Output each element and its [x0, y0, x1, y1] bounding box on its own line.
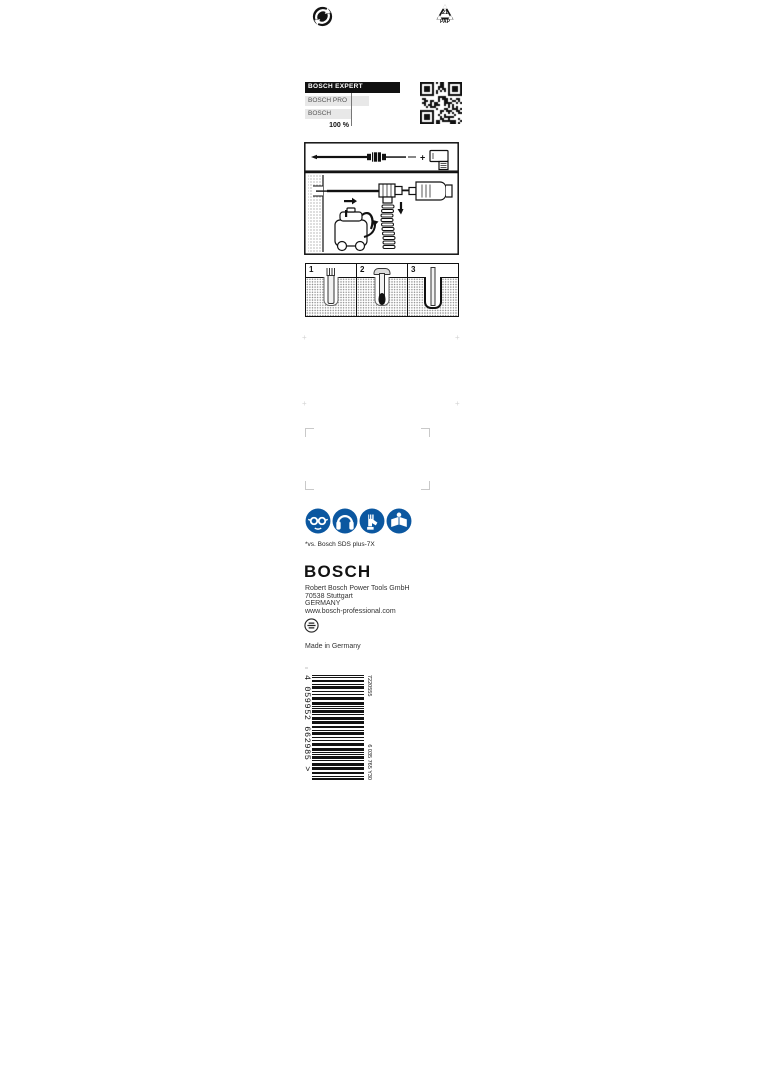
barcode-digits: 4 059952 662985 > [302, 675, 312, 780]
wear-gloves-icon [359, 508, 385, 534]
chart-bar-label: BOSCH PRO [308, 97, 347, 104]
pap-number: 21 [435, 10, 455, 16]
drillbit-shaft [328, 275, 335, 304]
chart-bar-standard: BOSCH [305, 109, 351, 119]
hammer-drill [409, 182, 452, 200]
step-number: 3 [411, 265, 415, 274]
made-in-label: Made in Germany [305, 643, 361, 650]
safety-icons-row [305, 508, 412, 534]
corner-bracket [305, 428, 314, 437]
chart-bar-pro: BOSCH PRO [305, 96, 369, 106]
print-mark [305, 667, 308, 669]
bosch-anchor-symbol-icon [304, 618, 319, 633]
green-dot-icon [312, 6, 333, 27]
corner-bracket [421, 481, 430, 490]
step-number: 1 [309, 265, 313, 274]
barcode-bars [312, 675, 364, 780]
address-line: GERMANY [305, 600, 410, 608]
wear-eye-protection-icon [305, 508, 331, 534]
address-line: www.bosch-professional.com [305, 608, 410, 616]
step-panel-3: 3 [408, 264, 458, 316]
barcode-order-code: 7220555 [364, 675, 373, 696]
usage-diagram: + [304, 142, 459, 260]
print-mark: + [302, 334, 307, 342]
dust-plug [379, 293, 386, 305]
anchor-rod [431, 267, 436, 306]
chart-bar-expert: BOSCH EXPERT [305, 82, 400, 93]
corner-bracket [421, 428, 430, 437]
print-mark: + [455, 334, 460, 342]
step-panel-1: 1 [306, 264, 357, 316]
manufacturer-address: Robert Bosch Power Tools GmbH 70538 Stut… [305, 585, 410, 615]
chart-reference-label: 100 % [305, 122, 349, 129]
drillbit [327, 190, 379, 192]
wear-ear-protection-icon [332, 508, 358, 534]
qr-code [420, 82, 462, 124]
address-line: 70538 Stuttgart [305, 593, 410, 601]
read-instructions-icon [386, 508, 412, 534]
pap-recycling-icon: 21 PAP [435, 3, 455, 29]
chart-bar-label: BOSCH [308, 110, 331, 117]
barcode-block: 7220555 6 035 765 Y30 4 059952 662985 > [302, 675, 373, 780]
barcode-article-code: 6 035 765 Y30 [364, 744, 373, 780]
chart-reference-line [351, 93, 352, 126]
print-mark: + [455, 400, 460, 408]
step-panel-2: 2 [357, 264, 408, 316]
svg-text:+: + [420, 153, 425, 163]
bosch-logo: BOSCH [304, 562, 371, 582]
step-number: 2 [360, 265, 364, 274]
corner-bracket [305, 481, 314, 490]
barcode-side-codes: 7220555 6 035 765 Y30 [364, 675, 373, 780]
footnote-text: *vs. Bosch SDS plus-7X [305, 541, 375, 548]
print-mark: + [302, 400, 307, 408]
chart-bar-label: BOSCH EXPERT [308, 83, 363, 90]
steps-diagram: 1 2 3 [305, 263, 459, 317]
address-line: Robert Bosch Power Tools GmbH [305, 585, 410, 593]
